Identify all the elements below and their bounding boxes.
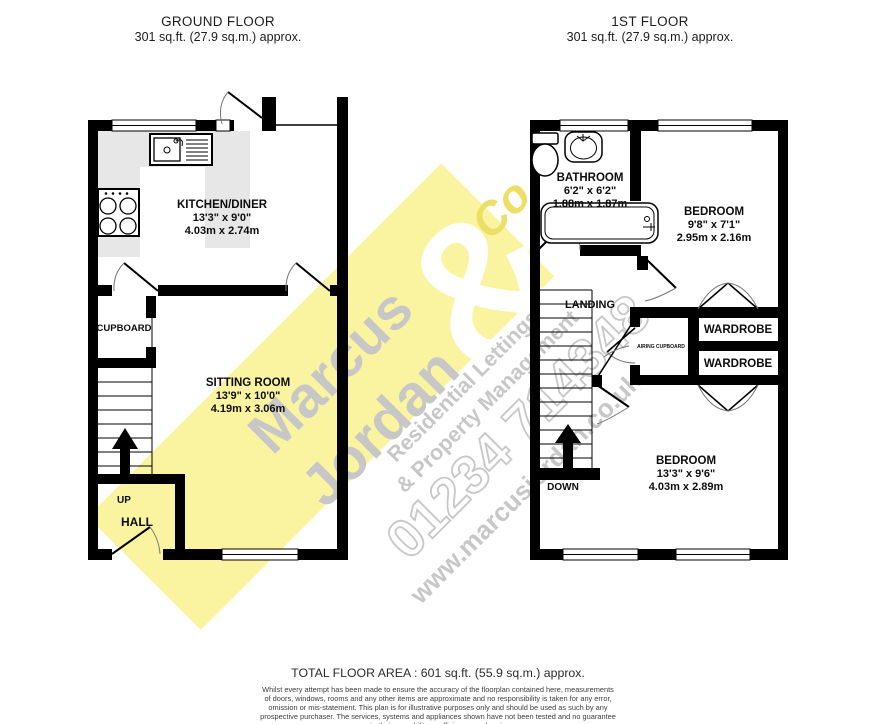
label-cupboard: CUPBOARD — [97, 323, 152, 334]
label-up: UP — [117, 495, 131, 506]
label-bathroom: BATHROOM — [557, 172, 624, 184]
label-airing-cupboard: AIRING CUPBOARD — [637, 344, 685, 350]
label-bathroom-metric: 1.88m x 1.87m — [553, 198, 628, 210]
label-hall: HALL — [121, 515, 153, 529]
label-wardrobe-1: WARDROBE — [704, 324, 773, 336]
label-kitchen-diner: KITCHEN/DINER — [177, 199, 268, 211]
label-sitting-room: SITTING ROOM — [206, 377, 290, 389]
label-wardrobe-2: WARDROBE — [704, 358, 773, 370]
label-landing: LANDING — [565, 299, 615, 311]
label-bedroom2: BEDROOM — [656, 455, 716, 467]
total-floor-area: TOTAL FLOOR AREA : 601 sq.ft. (55.9 sq.m… — [0, 666, 876, 680]
label-down: DOWN — [547, 482, 579, 493]
hob-icon — [98, 189, 139, 236]
toilet-icon — [532, 133, 558, 176]
disclaimer-line: Whilst every attempt has been made to en… — [0, 685, 876, 694]
label-bedroom2-metric: 4.03m x 2.89m — [649, 481, 724, 493]
disclaimer-line: omission or mis-statement. This plan is … — [0, 703, 876, 712]
label-bedroom1: BEDROOM — [684, 206, 744, 218]
label-kitchen-imperial: 13'3" x 9'0" — [193, 212, 251, 224]
floorplan-page: GROUND FLOOR 301 sq.ft. (27.9 sq.m.) app… — [0, 0, 876, 724]
label-sitting-metric: 4.19m x 3.06m — [211, 403, 286, 415]
label-bedroom1-imperial: 9'8" x 7'1" — [688, 219, 740, 231]
label-kitchen-metric: 4.03m x 2.74m — [185, 225, 260, 237]
footer: TOTAL FLOOR AREA : 601 sq.ft. (55.9 sq.m… — [0, 666, 876, 724]
label-bathroom-imperial: 6'2" x 6'2" — [564, 185, 616, 197]
label-bedroom1-metric: 2.95m x 2.16m — [677, 232, 752, 244]
label-bedroom2-imperial: 13'3" x 9'6" — [657, 468, 715, 480]
floorplan-canvas: Marcus Jordan & Co Residential Lettings … — [0, 0, 876, 724]
disclaimer-line: of doors, windows, rooms and any other i… — [0, 694, 876, 703]
basin-icon — [565, 132, 602, 162]
sink-icon — [150, 134, 212, 165]
disclaimer-line: prospective purchaser. The services, sys… — [0, 712, 876, 721]
label-sitting-imperial: 13'9" x 10'0" — [216, 390, 281, 402]
